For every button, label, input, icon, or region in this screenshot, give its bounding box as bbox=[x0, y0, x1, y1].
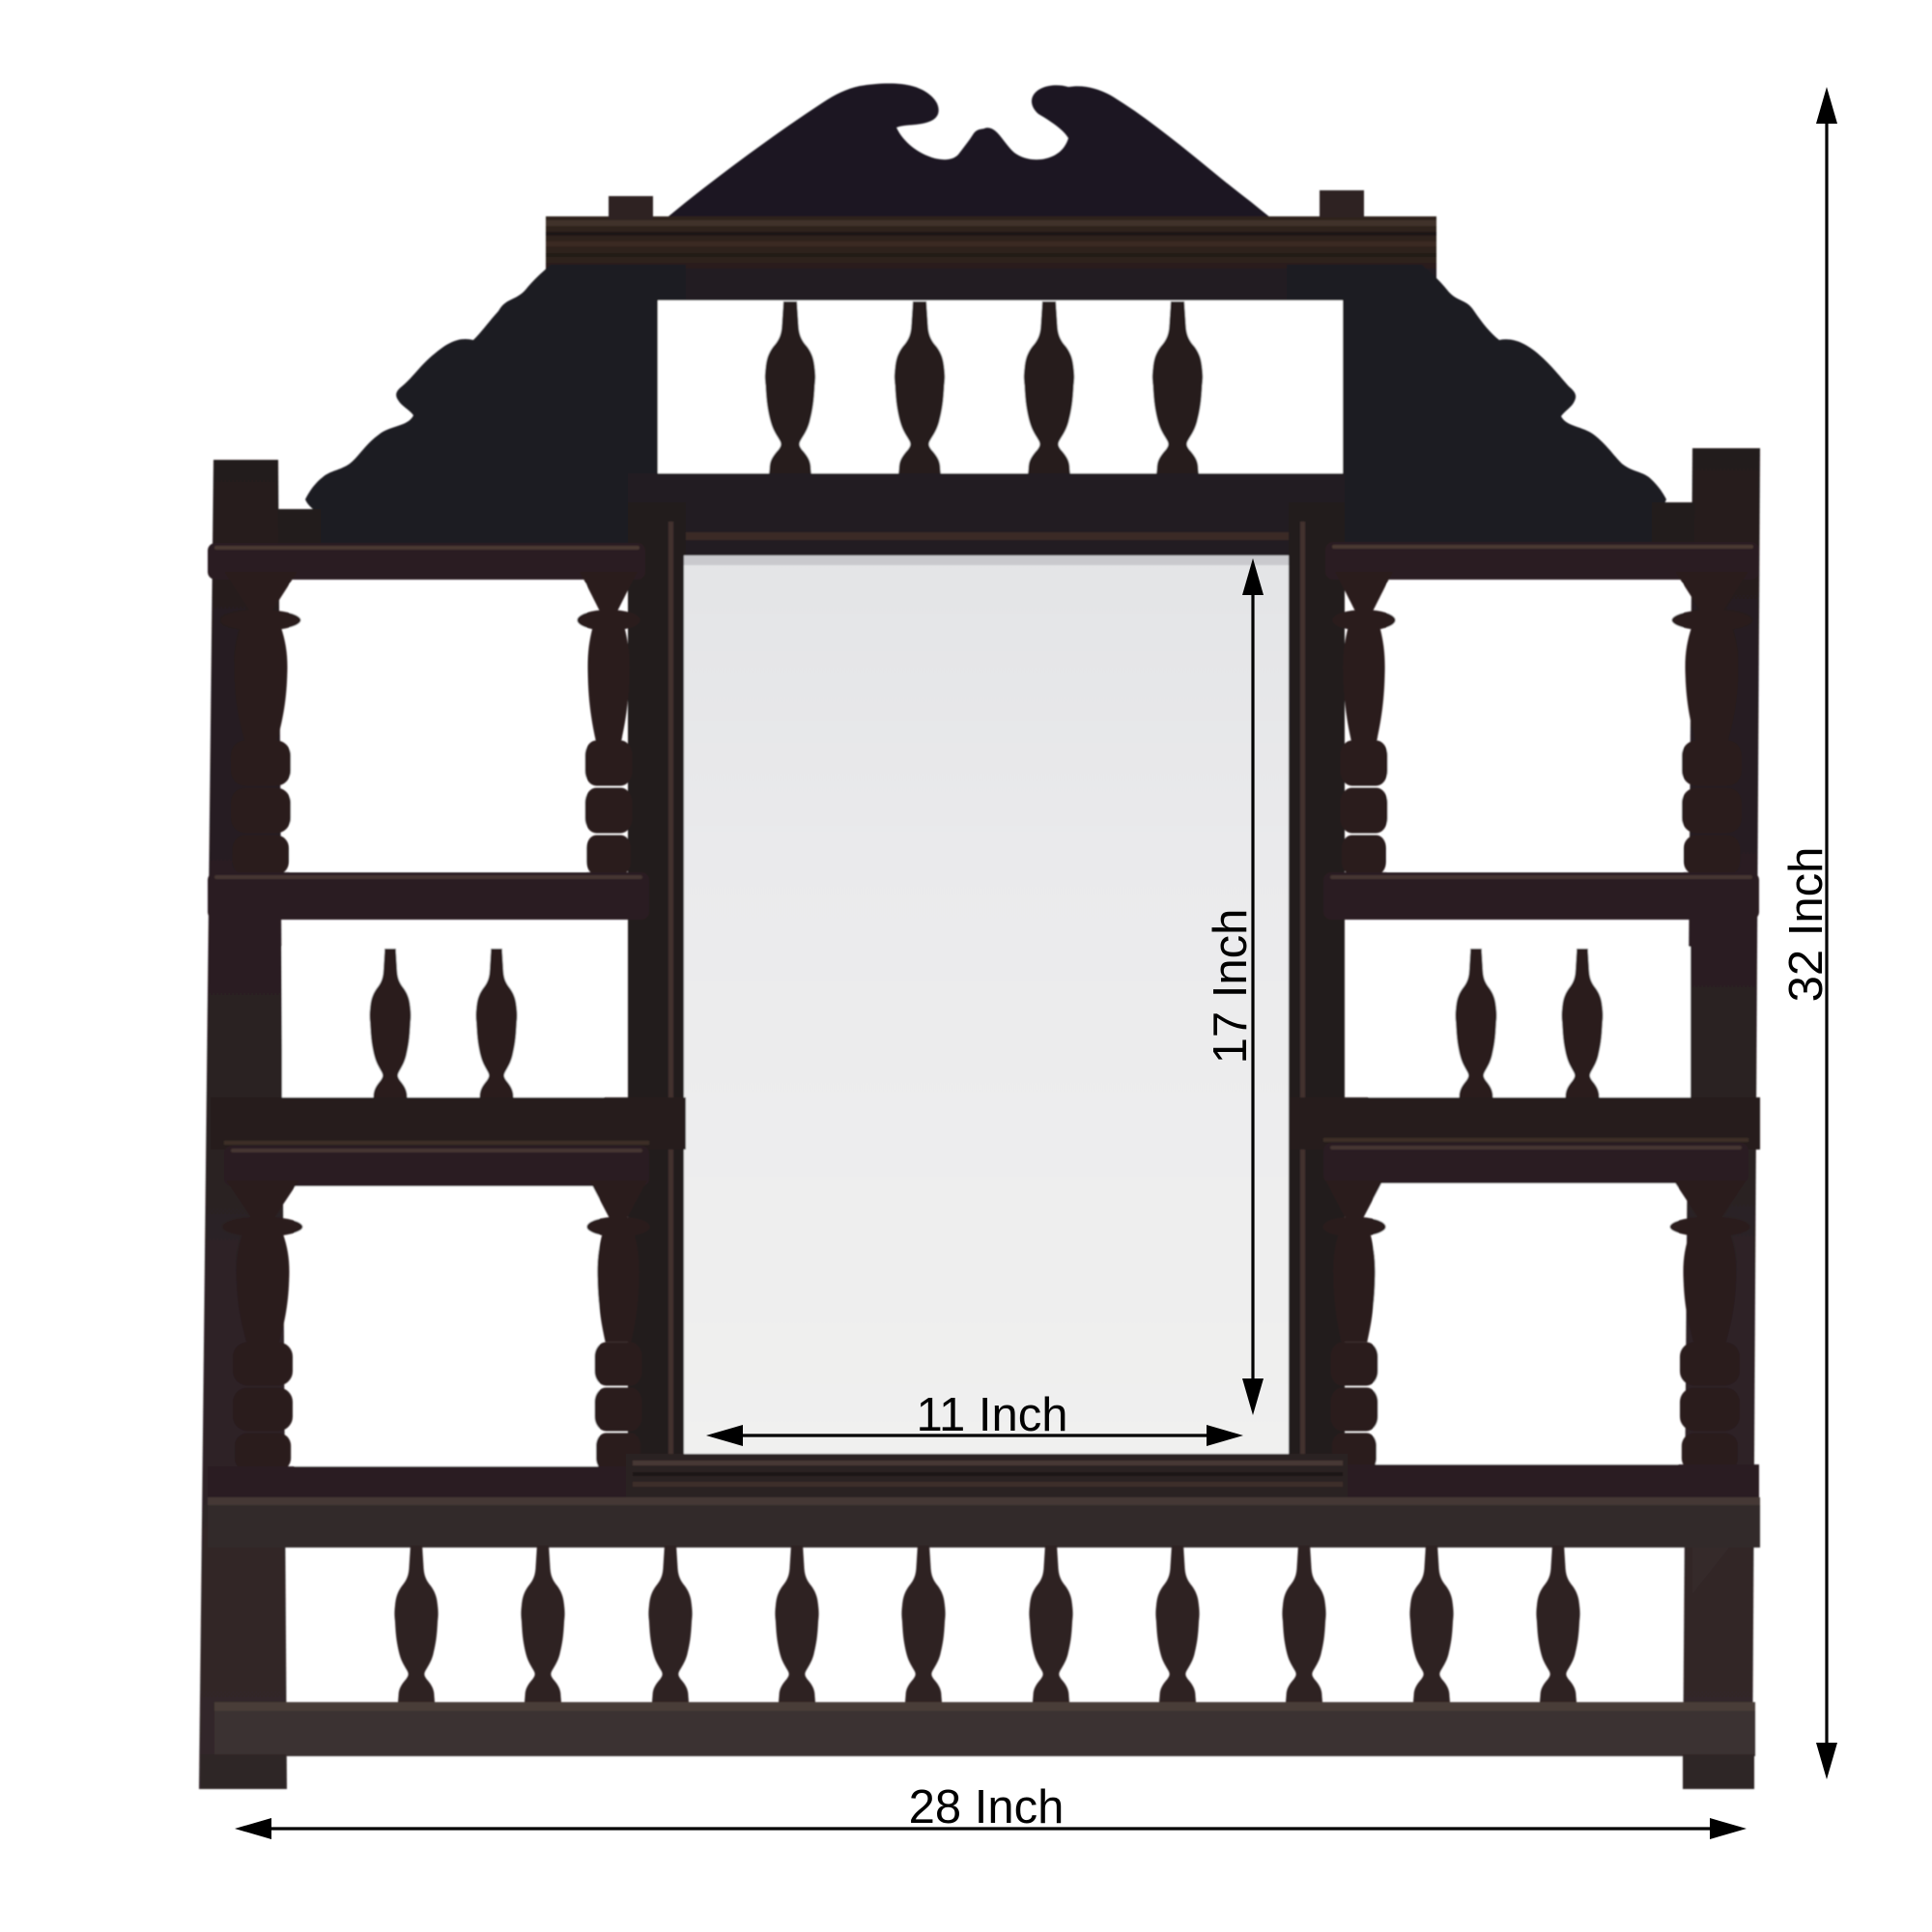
svg-text:17 Inch: 17 Inch bbox=[1205, 909, 1257, 1065]
svg-text:32 Inch: 32 Inch bbox=[1780, 847, 1833, 1003]
svg-text:11 Inch: 11 Inch bbox=[916, 1389, 1067, 1441]
svg-text:28 Inch: 28 Inch bbox=[909, 1781, 1065, 1833]
